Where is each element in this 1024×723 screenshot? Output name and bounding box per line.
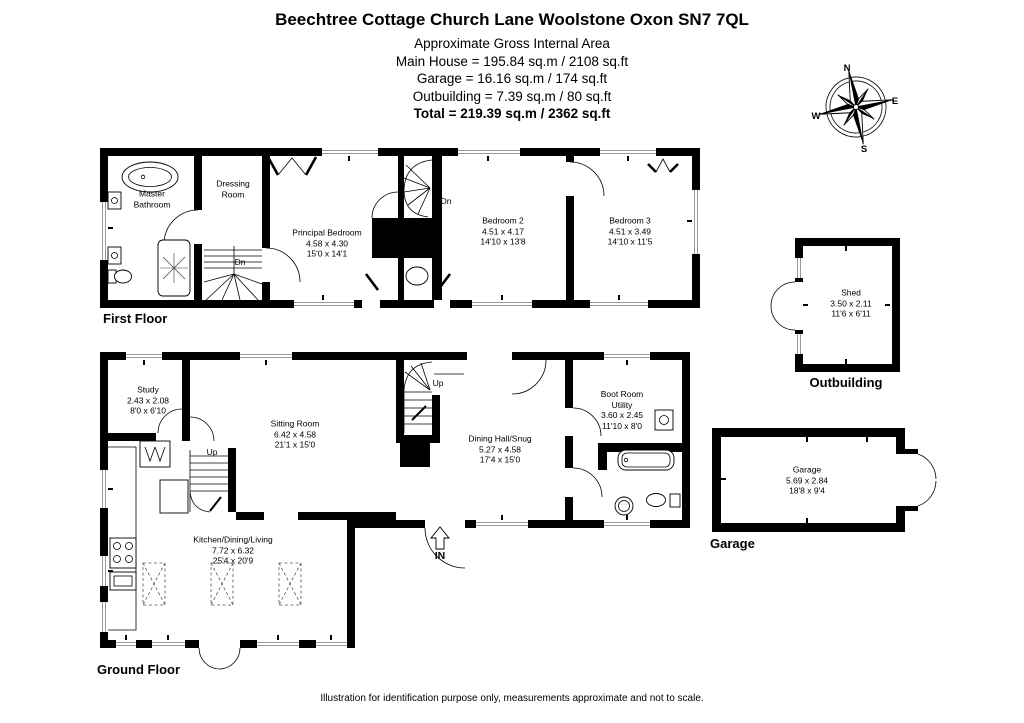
stairs-ground-central [404, 362, 432, 433]
compass-west: W [812, 111, 821, 122]
stairs-down-label-2: Dn [441, 196, 452, 207]
first-floor-label: First Floor [103, 311, 167, 326]
room-label-garage: Garage 5.69 x 2.84 18'8 x 9'4 [786, 464, 828, 496]
floorplan-canvas: N E S W [0, 0, 1024, 723]
stairs-first-floor-central [404, 160, 432, 217]
compass-south: S [861, 144, 867, 155]
stairs-first-floor-west [204, 246, 262, 300]
ground-floor-label: Ground Floor [97, 662, 180, 677]
wardrobe-chevron [268, 157, 316, 175]
compass-rose-icon: N E S W [811, 62, 900, 155]
stairs-down-label-1: Dn [235, 257, 246, 268]
skylight [143, 563, 301, 605]
garage-label: Garage [710, 536, 755, 551]
pedestal-sink-icon [615, 497, 633, 515]
outbuilding-label: Outbuilding [810, 375, 883, 390]
entrance-arrow-icon [431, 527, 449, 549]
disclaimer: Illustration for identification purpose … [0, 693, 1024, 704]
room-label-shed: Shed 3.50 x 2.11 11'6 x 6'11 [830, 287, 871, 319]
compass-north: N [844, 63, 851, 74]
wc-basin-icon [406, 267, 428, 285]
ground-bathtub-icon [618, 450, 674, 470]
room-label-bedroom-3: Bedroom 3 4.51 x 3.49 14'10 x 11'5 [608, 215, 653, 247]
room-label-study: Study 2.43 x 2.08 8'0 x 6'10 [127, 384, 169, 416]
stove-icon [110, 538, 136, 590]
shower-icon [158, 240, 190, 296]
room-label-sitting-room: Sitting Room 6.42 x 4.58 21'1 x 15'0 [271, 418, 320, 450]
room-label-principal-bedroom: Principal Bedroom 4.58 x 4.30 15'0 x 14'… [292, 227, 361, 259]
bathtub-icon [122, 162, 178, 192]
stairs-up-label-1: Up [207, 447, 218, 458]
room-label-master-bathroom: Master Bathroom [122, 189, 182, 210]
toilet-icon [108, 270, 132, 283]
ground-toilet-icon [647, 494, 681, 508]
room-label-boot-room: Boot Room Utility 3.60 x 2.45 11'10 x 8'… [590, 389, 654, 431]
kitchen-island [160, 480, 188, 513]
room-label-bedroom-2: Bedroom 2 4.51 x 4.17 14'10 x 13'8 [480, 215, 525, 247]
compass-east: E [892, 96, 898, 107]
room-label-dining-hall: Dining Hall/Snug 5.27 x 4.58 17'4 x 15'0 [468, 433, 531, 465]
room-label-kitchen: Kitchen/Dining/Living 7.72 x 6.32 25'4 x… [193, 534, 272, 566]
stairs-ground-west [190, 450, 228, 512]
entrance-label: IN [435, 550, 446, 562]
room-label-dressing-room: Dressing Room [208, 179, 258, 200]
bedroom3-corner-chevron [648, 159, 678, 172]
utility-sink-icon [655, 410, 673, 430]
stairs-up-label-2: Up [433, 378, 444, 389]
kitchen-counter [108, 441, 170, 630]
